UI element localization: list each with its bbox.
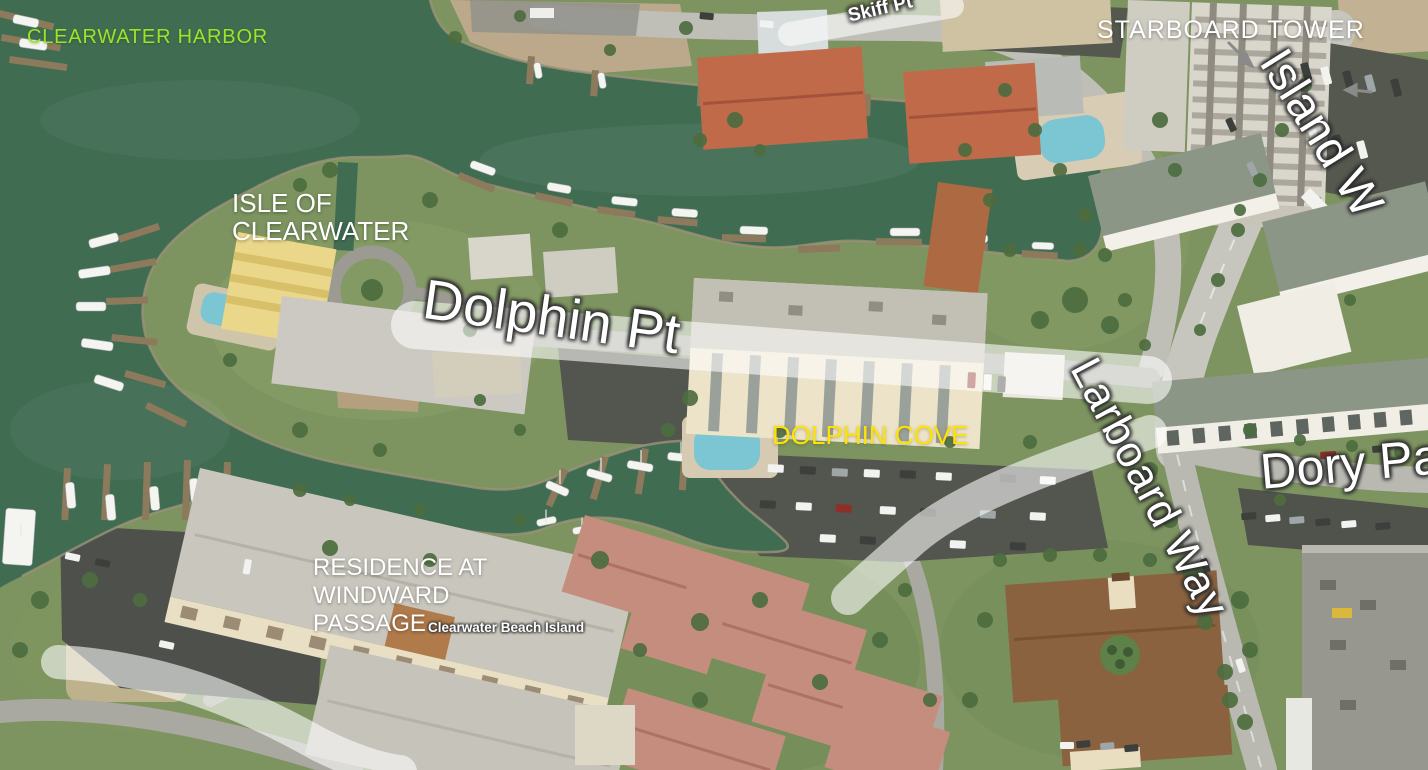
commercial-building — [1286, 545, 1428, 770]
label-starboard-tower: STARBOARD TOWER — [1097, 16, 1365, 44]
red-roof-house-2 — [903, 63, 1041, 164]
aerial-map[interactable]: CLEARWATER HARBOR ISLE OF CLEARWATER STA… — [0, 0, 1428, 770]
red-roof-houses — [697, 46, 868, 149]
label-clearwater-harbor: CLEARWATER HARBOR — [27, 26, 268, 48]
aerial-imagery — [0, 0, 1428, 770]
carports — [940, 0, 1112, 52]
label-dolphin-cove: DOLPHIN COVE — [772, 421, 969, 450]
label-clearwater-beach-island: Clearwater Beach Island — [428, 620, 584, 635]
label-isle-of-clearwater: ISLE OF CLEARWATER — [232, 189, 409, 245]
